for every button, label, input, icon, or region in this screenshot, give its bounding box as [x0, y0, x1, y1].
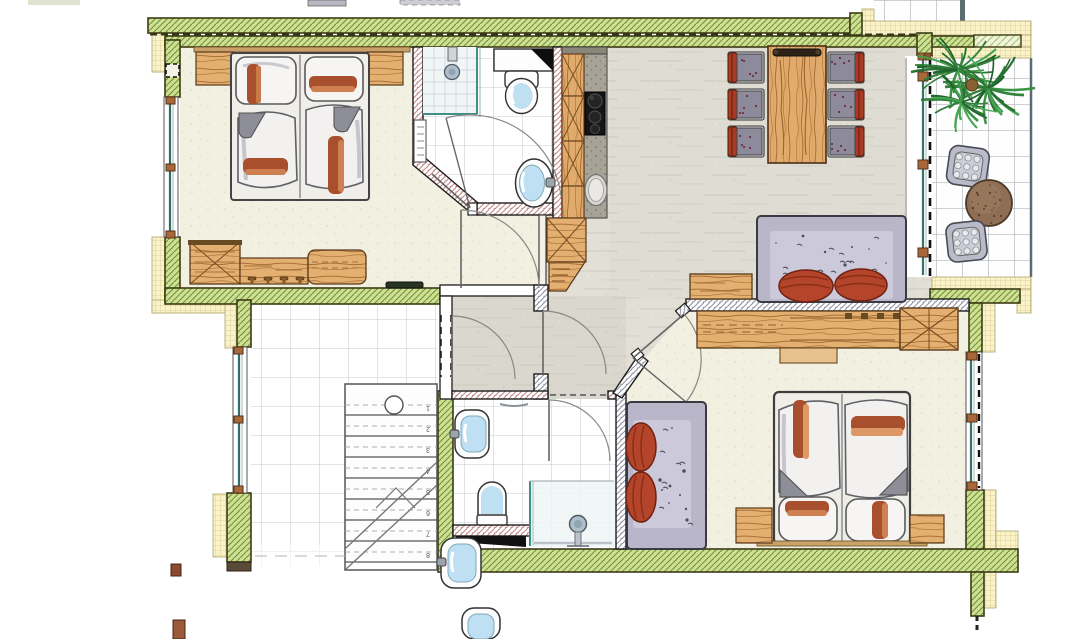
svg-text:6: 6: [426, 509, 430, 516]
svg-text:7: 7: [426, 530, 430, 537]
svg-text:2: 2: [426, 425, 430, 432]
svg-text:8: 8: [426, 551, 430, 558]
svg-text:3: 3: [426, 446, 430, 453]
svg-text:1: 1: [426, 404, 430, 411]
